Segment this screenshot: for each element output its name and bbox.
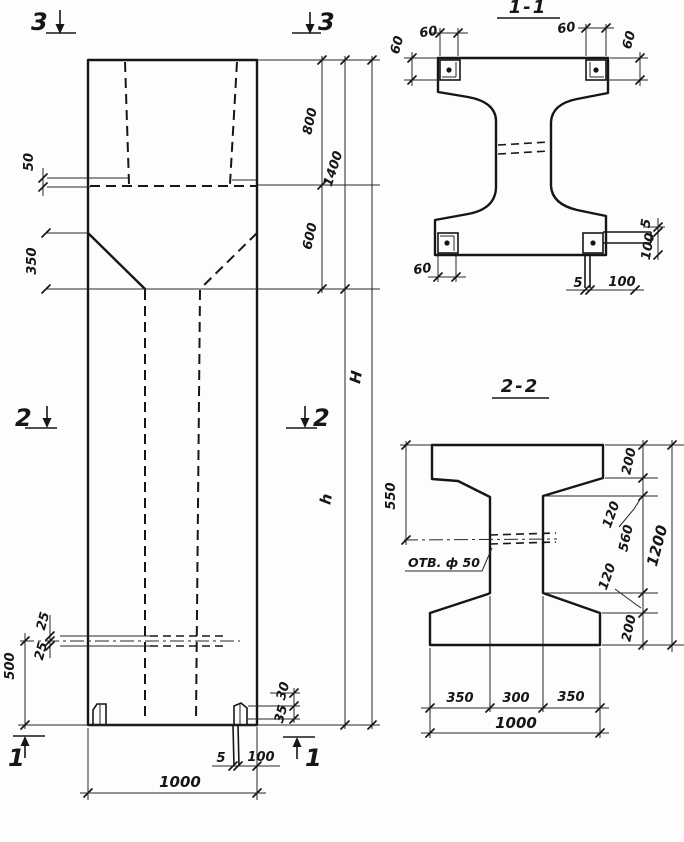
dim-foot-30: 30 [274,680,293,701]
dim-base-500: 500 [3,652,18,679]
s2-dim-mid-560: 560 [616,523,636,553]
s1-dim-tl-60: 60 [419,24,439,41]
section2-title: 2-2 [501,376,540,397]
dim-top-800: 800 [300,106,320,136]
drawing-sheet: 50 350 800 600 1400 H h 25 25 500 30 35 … [0,0,684,842]
s2-dim-right-1200: 1200 [643,523,671,568]
embed-plate-top-right [586,60,606,80]
s2-dim-bw-1000: 1000 [495,714,537,732]
section1-web-dashes [498,142,549,154]
s2-dim-bl-350: 350 [446,691,473,706]
section2-hole-centerline [404,539,557,540]
section-1-1: 1-1 [388,0,665,294]
dim-total-H: H [346,369,366,385]
section-mark-3-left: 3 [31,8,76,36]
section-mark-1-left: 1 [8,736,45,772]
section1-shape [435,58,608,255]
dim-foot-35: 35 [272,703,291,724]
section-mark-2-right: 2 [286,404,330,432]
shaft-hidden-right [196,290,200,720]
dim-taper-350: 350 [25,247,40,274]
dim-ticks [318,56,376,729]
top-block-hidden-right [230,62,237,184]
s1-dim-tr-60: 60 [557,20,577,37]
s2-dim-left-550: 550 [384,482,399,509]
embed-plate-bottom-right [583,233,603,253]
section1-title: 1-1 [509,0,548,18]
embed-leg-down [585,255,590,288]
s1-dim-bottom-100: 100 [608,275,635,290]
elevation-view: 50 350 800 600 1400 H h 25 25 500 30 35 … [3,8,380,800]
section2-hole-dashes [490,533,556,544]
technical-drawing: 50 350 800 600 1400 H h 25 25 500 30 35 … [0,0,684,842]
section-mark-3-right: 3 [292,8,335,36]
section-2-2: 2-2 ОТВ. ф 50 550 200 120 560 120 200 12… [384,376,684,738]
s1-dim-bl-60: 60 [413,261,433,278]
section2-shape [430,445,603,645]
mark-3-left-label: 3 [31,8,48,36]
dim-leg-5: 5 [216,751,225,766]
dim-top-1400: 1400 [321,149,346,188]
dim-leg-100: 100 [247,750,274,765]
right-dim-lines [318,56,376,729]
dim-shaft-h: h [316,492,336,506]
dim-width-1000: 1000 [159,773,201,791]
hole-note: ОТВ. ф 50 [408,555,480,570]
s2-dim-br-350: 350 [557,690,584,705]
mark-1-left-label: 1 [8,744,25,772]
mark-1-right-label: 1 [305,744,322,772]
top-block-hidden-left [125,62,129,184]
section-mark-2-left: 2 [15,404,57,432]
dim-ledge-50: 50 [22,153,37,171]
s1-dim-left-60: 60 [388,34,407,55]
section-mark-1-right: 1 [283,737,322,772]
s1-dim-right-60: 60 [620,29,639,50]
s2-dim-top-200: 200 [619,446,639,476]
s1-dim-bottom-5: 5 [573,276,582,291]
s2-dim-bot-200: 200 [619,613,639,643]
embed-plate-bottom-left [438,233,458,253]
embed-plate-top-left [440,60,460,80]
s1-dim-rside-5: 5 [638,218,654,230]
dim-top-600: 600 [300,221,320,251]
taper-edge-hidden [200,233,257,289]
mark-3-right-label: 3 [318,8,335,36]
s2-dim-bot-120: 120 [596,561,619,592]
s2-dim-bm-300: 300 [502,691,529,706]
dim-hole-25b: 25 [32,640,51,661]
taper-edge-visible [88,233,145,289]
base-leg [233,725,239,766]
